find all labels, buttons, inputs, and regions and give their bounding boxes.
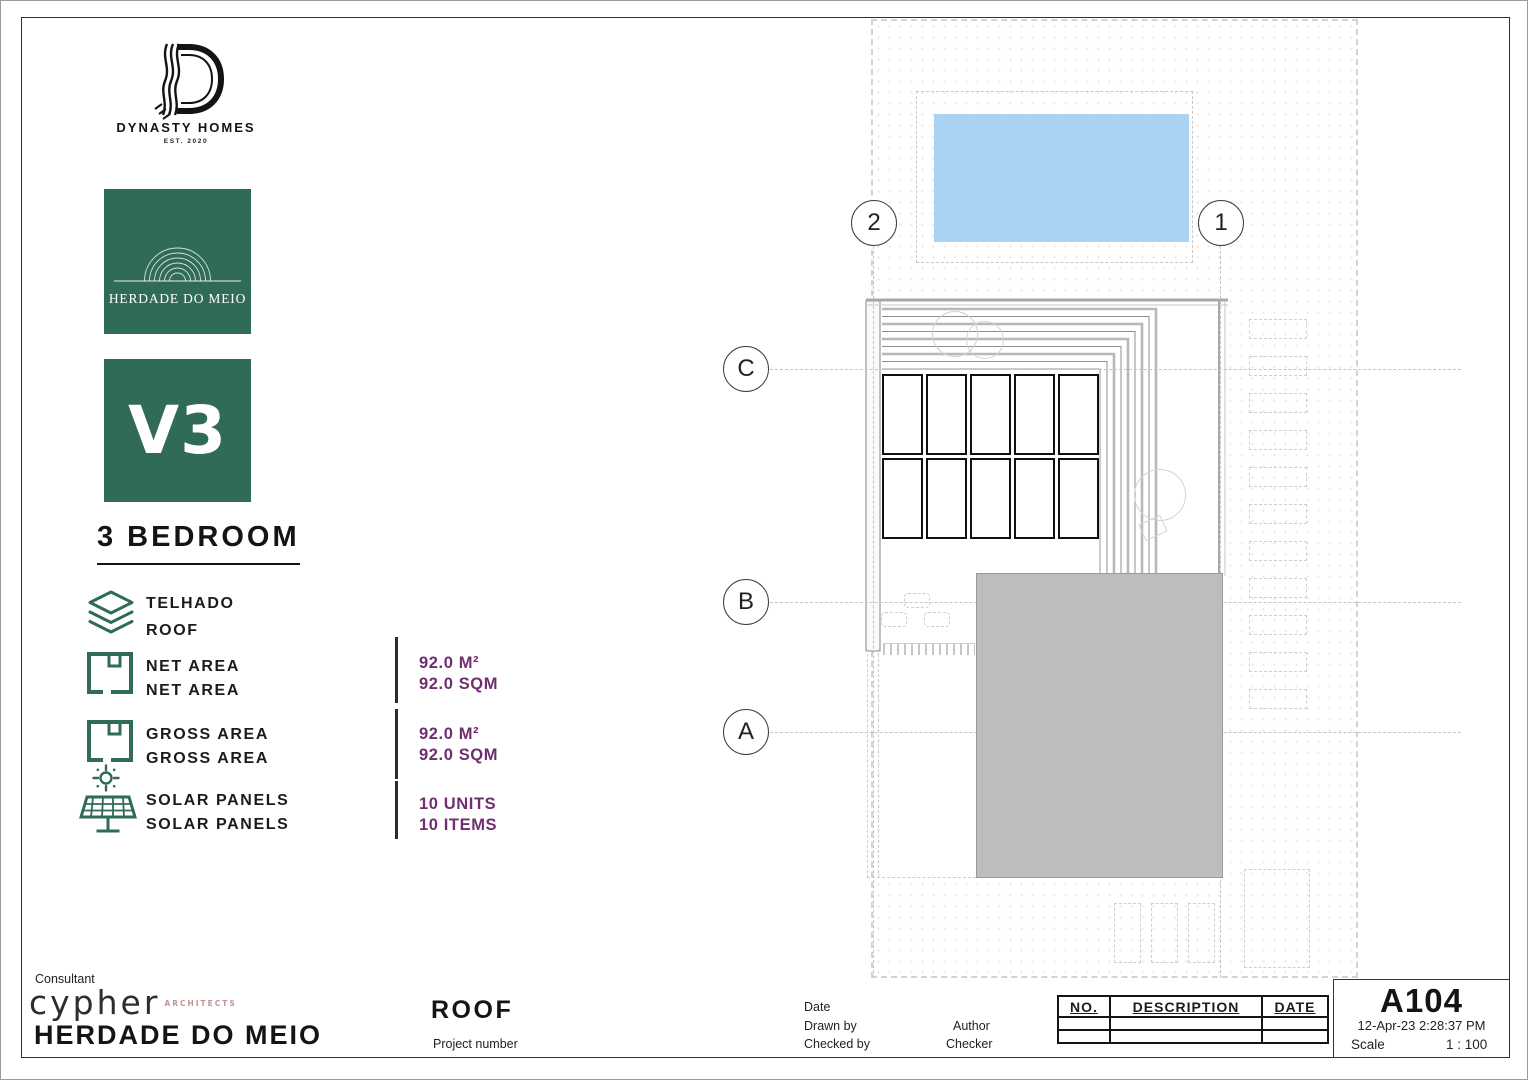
consultant-name: cypher — [29, 983, 160, 1022]
lounger-symbol — [904, 593, 930, 608]
company-tagline: EST. 2020 — [105, 138, 267, 145]
pergola-slat — [1249, 467, 1307, 487]
stat-label-en: NET AREA — [146, 679, 240, 703]
stat-value: 10 UNITS — [419, 794, 496, 815]
gridline-c — [770, 369, 1461, 370]
stat-value-secondary: 10 ITEMS — [419, 815, 497, 836]
pergola-slat — [1249, 356, 1307, 376]
revision-row — [1058, 1017, 1328, 1030]
stat-value-secondary: 92.0 SQM — [419, 674, 498, 695]
company-name: DYNASTY HOMES — [105, 120, 267, 135]
revision-cell — [1058, 1030, 1110, 1043]
pergola-slat — [1249, 615, 1307, 635]
revision-table: NO. DESCRIPTION DATE — [1057, 995, 1329, 1044]
pergola-slat — [1249, 319, 1307, 339]
solar-panel — [882, 458, 923, 539]
hidden-element — [1151, 903, 1178, 963]
solar-panel-icon — [79, 793, 137, 837]
stat-value: 92.0 M² — [419, 724, 479, 745]
solar-panel-grid — [882, 374, 1099, 539]
grid-bubble-1: 1 — [1198, 200, 1244, 246]
stat-label: GROSS AREA — [146, 723, 269, 747]
consultant-logo: cypherARCHITECTS — [29, 983, 237, 1022]
hidden-element — [1188, 903, 1215, 963]
solar-panel — [926, 458, 967, 539]
pergola-column — [1249, 319, 1307, 719]
estate-arch-icon: HERDADE DO MEIO — [104, 189, 251, 334]
unit-type-heading: 3 BEDROOM — [97, 521, 300, 565]
sheet-number: A104 — [1333, 982, 1510, 1020]
grid-bubble-label: C — [737, 355, 754, 383]
date-label: Date — [804, 1000, 830, 1014]
hidden-edge — [867, 877, 976, 878]
scale-value: 1 : 100 — [1446, 1037, 1487, 1052]
revision-col-date: DATE — [1262, 996, 1328, 1017]
stat-label: NET AREA — [146, 655, 240, 679]
grid-bubble-c: C — [723, 346, 769, 392]
solar-panel — [970, 374, 1011, 455]
stat-value-secondary: 92.0 SQM — [419, 745, 498, 766]
solar-panel — [1014, 374, 1055, 455]
hidden-element — [1114, 903, 1141, 963]
solar-panel — [1058, 374, 1099, 455]
tree-canopy — [1134, 469, 1186, 521]
stat-divider — [395, 709, 398, 779]
pergola-slat — [1249, 578, 1307, 598]
scale-label: Scale — [1351, 1037, 1385, 1052]
layers-icon — [85, 587, 137, 639]
upper-roof-slab — [976, 573, 1223, 878]
grid-bubble-label: 2 — [867, 209, 880, 237]
stat-divider — [395, 781, 398, 839]
checked-by-value: Checker — [946, 1037, 993, 1051]
stat-divider — [395, 637, 398, 703]
pergola-slat — [1249, 430, 1307, 450]
sun-icon — [91, 763, 121, 793]
pergola-slat — [1249, 689, 1307, 709]
drawn-by-value: Author — [953, 1019, 990, 1033]
swimming-pool — [934, 114, 1189, 242]
stat-value: 92.0 M² — [419, 653, 479, 674]
lounger-symbol — [924, 612, 950, 627]
drawing-sheet: DYNASTY HOMES EST. 2020 HERDADE DO MEIO … — [0, 0, 1528, 1080]
grid-bubble-b: B — [723, 579, 769, 625]
solar-panel — [926, 374, 967, 455]
hidden-element — [1244, 869, 1310, 968]
pergola-slat — [1249, 652, 1307, 672]
gridline-2 — [873, 246, 874, 978]
revision-row — [1058, 1030, 1328, 1043]
hidden-edge — [878, 649, 879, 878]
revision-cell — [1262, 1030, 1328, 1043]
revision-cell — [1058, 1017, 1110, 1030]
floorplan-icon — [85, 651, 135, 695]
stat-label-en: GROSS AREA — [146, 747, 269, 771]
hatch-strip — [883, 643, 975, 655]
unit-code: V3 — [128, 392, 227, 469]
revision-col-desc: DESCRIPTION — [1110, 996, 1262, 1017]
stat-label-en: SOLAR PANELS — [146, 813, 289, 837]
stat-label: SOLAR PANELS — [146, 789, 289, 813]
dynasty-homes-logo-icon — [139, 41, 234, 123]
level-name-pt: TELHADO — [146, 592, 235, 616]
level-name-en: ROOF — [146, 619, 199, 643]
grid-bubble-label: B — [738, 588, 754, 616]
grid-bubble-label: A — [738, 718, 754, 746]
sheet-title: ROOF — [431, 996, 513, 1025]
hidden-edge — [867, 649, 868, 878]
solar-panel — [970, 458, 1011, 539]
solar-panel — [1014, 458, 1055, 539]
revision-cell — [1262, 1017, 1328, 1030]
pergola-slat — [1249, 504, 1307, 524]
estate-logo-badge: HERDADE DO MEIO — [104, 189, 251, 334]
grid-bubble-a: A — [723, 709, 769, 755]
solar-panel — [1058, 458, 1099, 539]
project-name: HERDADE DO MEIO — [34, 1020, 322, 1051]
solar-panel — [882, 374, 923, 455]
revision-cell — [1110, 1017, 1262, 1030]
floorplan-icon — [85, 719, 135, 763]
estate-name: HERDADE DO MEIO — [109, 291, 246, 306]
consultant-subtitle: ARCHITECTS — [164, 999, 236, 1008]
pergola-slat — [1249, 541, 1307, 561]
revision-col-no: NO. — [1058, 996, 1110, 1017]
unit-badge: V3 — [104, 359, 251, 502]
revision-cell — [1110, 1030, 1262, 1043]
print-datetime: 12-Apr-23 2:28:37 PM — [1333, 1018, 1510, 1033]
checked-by-label: Checked by — [804, 1037, 870, 1051]
pergola-slat — [1249, 393, 1307, 413]
grid-bubble-2: 2 — [851, 200, 897, 246]
project-number-label: Project number — [433, 1037, 518, 1051]
lounger-symbol — [881, 612, 907, 627]
grid-bubble-label: 1 — [1214, 209, 1227, 237]
tree-canopy — [966, 321, 1004, 359]
drawn-by-label: Drawn by — [804, 1019, 857, 1033]
